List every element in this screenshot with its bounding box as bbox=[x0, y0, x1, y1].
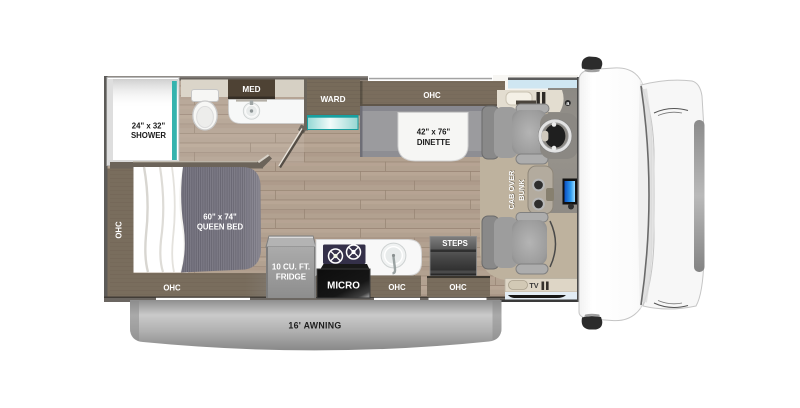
svg-text:16' AWNING: 16' AWNING bbox=[288, 321, 341, 331]
svg-text:FRIDGE: FRIDGE bbox=[276, 273, 307, 282]
svg-text:10 CU. FT.: 10 CU. FT. bbox=[272, 263, 310, 272]
svg-text:OHC: OHC bbox=[423, 91, 441, 100]
svg-text:MICRO: MICRO bbox=[327, 281, 360, 292]
svg-text:OHC: OHC bbox=[449, 283, 467, 292]
svg-text:MED: MED bbox=[242, 85, 260, 94]
svg-text:SHOWER: SHOWER bbox=[131, 131, 166, 140]
svg-text:60" x 74": 60" x 74" bbox=[203, 213, 237, 222]
svg-text:42" x 76": 42" x 76" bbox=[417, 128, 451, 137]
svg-text:24" x 32": 24" x 32" bbox=[132, 122, 166, 131]
svg-text:OHC: OHC bbox=[388, 283, 406, 292]
svg-text:QUEEN BED: QUEEN BED bbox=[197, 223, 244, 232]
svg-text:BUNK: BUNK bbox=[517, 179, 526, 201]
svg-text:CAB OVER: CAB OVER bbox=[507, 170, 516, 210]
svg-text:DINETTE: DINETTE bbox=[417, 138, 450, 147]
svg-text:STEPS: STEPS bbox=[442, 239, 468, 248]
svg-text:OHC: OHC bbox=[115, 221, 124, 239]
svg-text:OHC: OHC bbox=[163, 283, 181, 292]
svg-text:TV: TV bbox=[529, 281, 538, 290]
svg-text:WARD: WARD bbox=[320, 95, 345, 104]
